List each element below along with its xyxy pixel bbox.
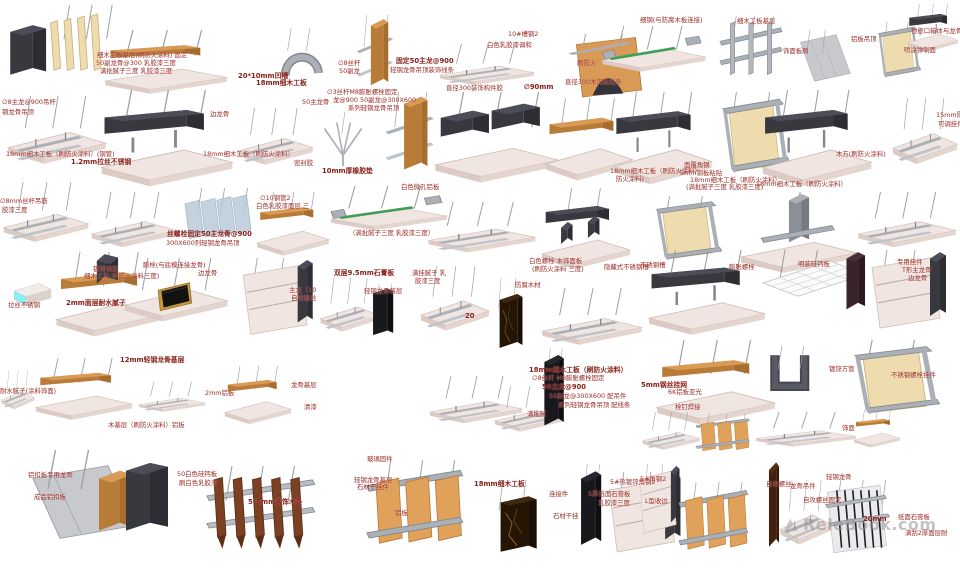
annotation-label: 龙骨吊件 bbox=[790, 483, 816, 490]
annotation-label: ∅8mm丝杆吊筋 bbox=[0, 198, 48, 205]
annotation-label: 刷白色乳胶漆 bbox=[179, 480, 217, 487]
annotation-label: 50主龙骨 bbox=[302, 99, 329, 106]
detail-glass bbox=[178, 188, 266, 258]
annotation-label: 白色微孔铝板 bbox=[401, 184, 439, 191]
annotation-label: 拉丝不锈钢 bbox=[8, 302, 40, 309]
annotation-label: 直径300木饰面线条 bbox=[565, 79, 622, 86]
annotation-label: 龙骨基层 bbox=[291, 382, 317, 389]
annotation-label: 铝板吊顶 bbox=[851, 36, 877, 43]
annotation-label: 明装硅钙板 bbox=[798, 261, 830, 268]
annotation-label: 边龙骨 bbox=[908, 275, 927, 282]
detail-flat bbox=[0, 370, 36, 420]
annotation-label: 细钢(与防腐木板连接) bbox=[640, 17, 703, 24]
annotation-label: 边龙骨 bbox=[210, 111, 229, 118]
detail-udark bbox=[750, 346, 828, 408]
annotation-label: 石材干挂件 bbox=[357, 484, 389, 491]
annotation-label: 轻钢龙骨 bbox=[826, 474, 852, 481]
annotation-label: 清漆 bbox=[304, 404, 317, 411]
annotation-label: （满批腻子三度 乳胶漆三度） bbox=[349, 230, 434, 237]
annotation-label: 2mm铝板 bbox=[205, 390, 234, 397]
annotation-label: 6K铝板亚光 bbox=[668, 389, 702, 396]
annotation-label: 细木工板基层 bbox=[737, 18, 775, 25]
annotation-label: (刷防火涂料 三度) bbox=[532, 266, 584, 273]
annotation-label: 连接件 bbox=[549, 491, 568, 498]
annotation-label: 50主龙@900 bbox=[542, 384, 586, 391]
annotation-label: 18mm细木工板 bbox=[474, 481, 525, 488]
annotation-label: 2mm面层耐水腻子 bbox=[66, 300, 126, 307]
annotation-label: 18mm细木工板 bbox=[256, 80, 307, 87]
annotation-label: 钢龙骨吊顶 bbox=[2, 109, 34, 116]
annotation-label: 白色乳胶漆调和 bbox=[487, 42, 532, 49]
annotation-label: 白色螺栓 木饰面板 bbox=[529, 258, 582, 265]
annotation-label: 面覆角钢 bbox=[684, 162, 710, 169]
detail-orangewall bbox=[674, 482, 756, 566]
annotation-label: 1.2mm拉丝不锈钢 bbox=[71, 159, 131, 166]
watermark: ReleBook.com bbox=[782, 515, 937, 534]
annotation-label: 自攻螺丝 bbox=[291, 295, 317, 302]
annotation-label: 胶漆三度 bbox=[415, 278, 441, 285]
annotation-label: 膨胀螺栓 bbox=[729, 264, 755, 271]
annotation-label: 栓钉焊接 bbox=[675, 404, 701, 411]
annotation-label: 胶漆三度 bbox=[2, 207, 28, 214]
annotation-label: 5#角钢2 bbox=[640, 476, 666, 483]
annotation-label: 5厚纸面石膏板 bbox=[588, 491, 630, 498]
detail-flat bbox=[136, 382, 208, 420]
detail-woodtop bbox=[852, 410, 902, 450]
detail-marble bbox=[484, 278, 536, 358]
annotation-label: 18mm细木工板（刷防火涂料） bbox=[756, 181, 847, 188]
annotation-label: 固定50主龙@900 bbox=[396, 58, 454, 65]
detail-marble bbox=[476, 480, 558, 562]
annotation-label: 50副龙 bbox=[339, 68, 360, 75]
annotation-label: 18mm细木工板（刷防火涂料） bbox=[203, 151, 294, 158]
annotation-label: 玻璃固件 bbox=[367, 456, 393, 463]
annotation-label: 铝板 bbox=[395, 510, 408, 517]
annotation-label: ∅10钢管2 bbox=[260, 195, 291, 202]
annotation-label: 龙@900 50副龙@300X600 bbox=[333, 97, 416, 104]
annotation-label: T形主龙骨 bbox=[902, 267, 931, 274]
annotation-label: 系列轻钢龙骨吊顶 配线条 bbox=[558, 402, 630, 409]
annotation-label: 饰面板刷 bbox=[783, 48, 809, 55]
detail-flat bbox=[0, 182, 92, 258]
annotation-label: ∅90mm bbox=[524, 84, 553, 91]
annotation-label: 50副龙@300X600 配吊件 bbox=[549, 393, 626, 400]
annotation-label: 木基层（刷防火涂料）铝板 bbox=[108, 422, 185, 429]
annotation-label: 膨栓(与底模连接龙骨) bbox=[143, 262, 206, 269]
detail-grayslant bbox=[794, 30, 858, 92]
annotation-label: 防腐木材 bbox=[515, 282, 541, 289]
annotation-label: ∅8丝杆 bbox=[338, 60, 360, 67]
detail-sheet-canvas: 细木工板基层(刷防火涂料) 固定50副龙骨@300 乳胶漆三度满批腻子三度 乳胶… bbox=[0, 0, 960, 574]
annotation-label: 满批腻 bbox=[527, 411, 546, 418]
detail-darktable bbox=[538, 188, 634, 268]
watermark-logo bbox=[782, 516, 800, 534]
annotation-label: 系列轻钢龙骨吊顶 bbox=[348, 105, 399, 112]
annotation-label: 铝扣板专用龙骨 bbox=[28, 472, 73, 479]
detail-slatsbrown bbox=[202, 466, 322, 558]
annotation-label: 15mm厚 bbox=[936, 112, 960, 119]
annotation-label: 丝螺栓固定50主龙骨@900 bbox=[167, 231, 252, 238]
annotation-label: 直径300装饰构件胶 bbox=[446, 85, 503, 92]
annotation-label: 白色乳胶漆面层 三 bbox=[256, 203, 309, 210]
annotation-label: 不锈钢槽 bbox=[640, 262, 666, 269]
annotation-label: (满批腻子三度 乳胶漆三度) bbox=[686, 184, 763, 191]
annotation-label: ∅8丝杆 M8膨胀螺栓固定 bbox=[532, 375, 604, 382]
watermark-text: ReleBook.com bbox=[803, 515, 937, 534]
detail-flat bbox=[234, 108, 316, 180]
annotation-label: 细木工板基层(刷防火涂料) 固定 bbox=[97, 52, 187, 59]
annotation-label: 专用挂件 bbox=[897, 259, 923, 266]
annotation-label: ∅8主龙@900吊杆 bbox=[2, 99, 56, 106]
detail-postsframe bbox=[714, 16, 788, 94]
annotation-label: 可调挂件 bbox=[938, 121, 960, 128]
annotation-label: 不锈钢螺栓挂件 bbox=[891, 372, 936, 379]
annotation-label: 20 bbox=[465, 313, 474, 320]
detail-bracket bbox=[312, 112, 374, 172]
detail-orangewall bbox=[692, 414, 756, 460]
annotation-label: 满批腻子三度 乳胶漆三度 bbox=[100, 68, 172, 75]
annotation-label: 成品铝扣板 bbox=[34, 494, 66, 501]
detail-woodtop bbox=[222, 366, 294, 428]
annotation-label: 自攻螺丝 bbox=[766, 481, 792, 488]
detail-flat bbox=[752, 412, 860, 456]
annotation-label: 10#槽钢2 bbox=[508, 31, 538, 38]
annotation-label: 刷防火 bbox=[577, 60, 596, 67]
annotation-label: 自攻螺丝固定 bbox=[803, 497, 841, 504]
annotation-label: 检修口箱体与龙骨 bbox=[911, 28, 960, 35]
detail-darkroof bbox=[758, 90, 876, 190]
annotation-label: 双层9.5mm石膏板 bbox=[334, 270, 394, 277]
annotation-label: 乳胶漆三度 bbox=[598, 500, 630, 507]
annotation-label: 5*5mm装饰木条 bbox=[248, 499, 302, 506]
annotation-label: 耐水腻子(涂料饰面) bbox=[0, 388, 56, 395]
annotation-label: 轻钢龙骨基层 bbox=[364, 288, 402, 295]
annotation-label: 镀锌方管 bbox=[829, 366, 855, 373]
annotation-label: L型收边 bbox=[645, 498, 668, 505]
annotation-label: 密封胶 bbox=[294, 160, 313, 167]
annotation-label: 18mm细木工板（刷防火涂料）(钢管) bbox=[6, 151, 115, 158]
annotation-label: 防火涂料) bbox=[616, 176, 644, 183]
annotation-label: 12mm轻钢龙骨基层 bbox=[120, 357, 184, 364]
annotation-label: 石材干挂 bbox=[553, 513, 579, 520]
annotation-label: 10mm厚橡胶垫 bbox=[322, 168, 373, 175]
annotation-label: 300X600列轻钢龙骨吊顶 bbox=[166, 240, 240, 247]
annotation-label: 轻钢龙骨吊顶装饰线条 bbox=[390, 67, 454, 74]
annotation-label: 细木工板(刷防火涂料三度) bbox=[84, 273, 159, 280]
annotation-label: 饰面 bbox=[842, 425, 855, 432]
detail-woodblock bbox=[24, 450, 174, 554]
annotation-label: ∅3丝杆M8膨胀螺栓固定 bbox=[327, 89, 397, 96]
annotation-label: 主龙（10 bbox=[289, 287, 316, 294]
annotation-label: 50副龙骨@300 乳胶漆三度 bbox=[96, 60, 176, 67]
annotation-label: 50白色硅钙板 bbox=[177, 471, 217, 478]
annotation-label: 木方(刷防火涂料) bbox=[836, 151, 886, 158]
detail-darkroof bbox=[96, 90, 238, 190]
annotation-label: 满挂腻子 乳 bbox=[412, 270, 446, 277]
annotation-label: 喷涂弹制面 bbox=[904, 47, 936, 54]
detail-flat bbox=[424, 202, 540, 266]
annotation-label: 边龙骨 bbox=[198, 270, 217, 277]
